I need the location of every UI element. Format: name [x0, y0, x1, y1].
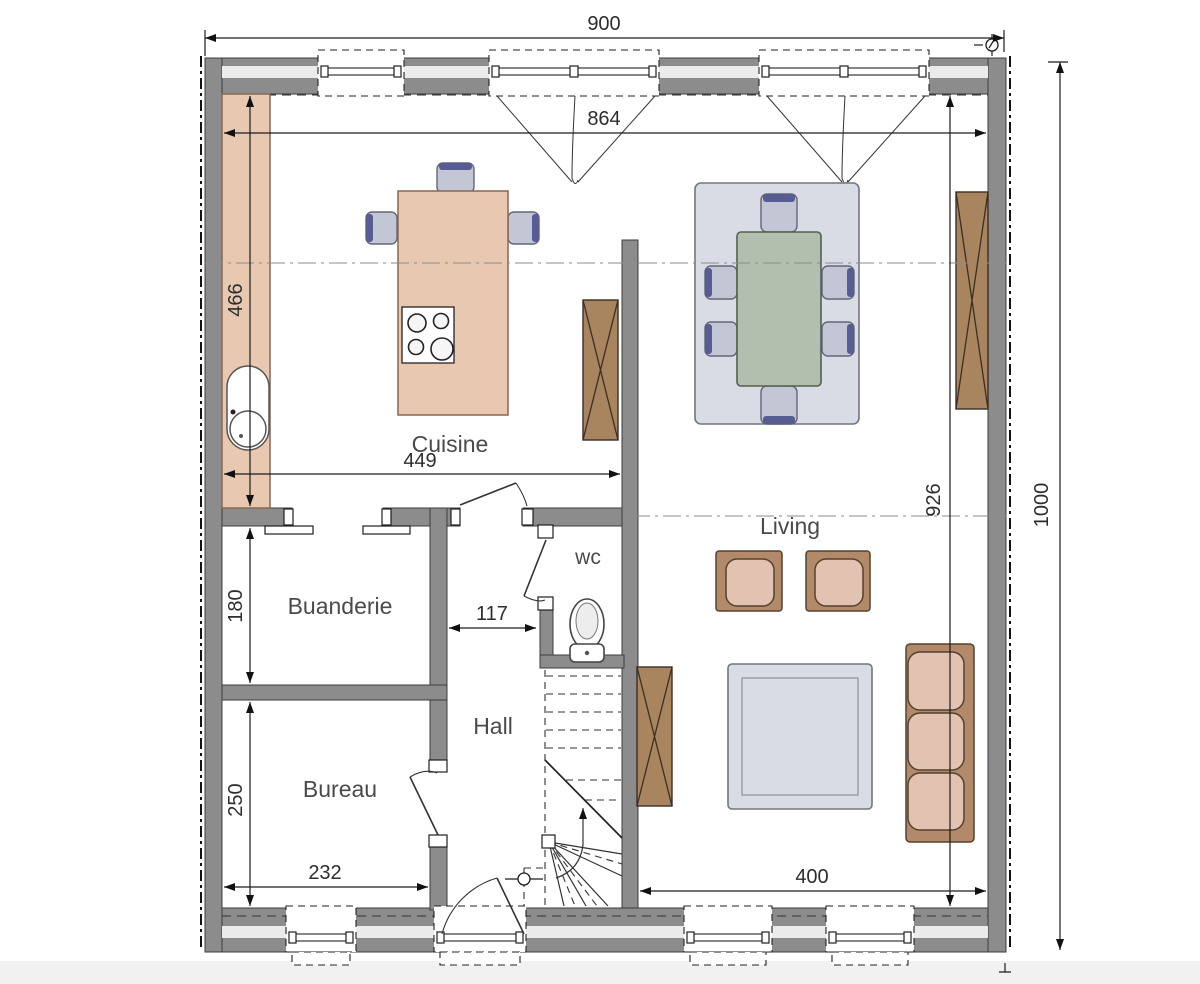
window-bureau: [286, 906, 356, 965]
floor-plan-canvas: 900 864 466 449 926 1000 180 250: [0, 0, 1200, 984]
island-chair-left: [366, 212, 397, 244]
dim-label-kitchen-depth: 466: [225, 283, 247, 316]
kitchen-tall-cabinet: [583, 300, 618, 440]
dim-label-bureau-depth: 250: [225, 783, 247, 816]
wc-door-jamb-top: [538, 525, 553, 538]
background: [0, 0, 1200, 984]
island-chair-top: [437, 163, 474, 193]
kitchen-door-jamb-right: [522, 509, 533, 525]
dining-sideboard: [956, 192, 988, 409]
burner: [434, 314, 449, 329]
cuisine-buanderie-wall-left: [222, 508, 292, 526]
room-label-buanderie: Buanderie: [288, 593, 393, 619]
window-living-left: [684, 906, 772, 965]
burner: [409, 340, 424, 355]
kitchen-sink-basin: [230, 411, 266, 447]
sink-faucet-dot: [231, 410, 236, 415]
sink-drain-dot: [239, 434, 243, 438]
dining-table: [737, 232, 821, 386]
stair-newel-post: [542, 835, 555, 848]
dim-label-bureau-width: 232: [308, 862, 341, 884]
bureau-door-jamb-bottom: [429, 835, 447, 847]
dining-chair: [761, 194, 797, 232]
toilet-button: [585, 651, 589, 655]
dining-chair: [705, 322, 737, 356]
kitchen-door-jamb-left: [451, 509, 460, 525]
room-label-living: Living: [760, 513, 820, 539]
living-cabinet: [637, 667, 672, 806]
window-living-right: [826, 906, 914, 965]
buanderie-bureau-wall: [222, 685, 447, 700]
buanderie-door-jamb-right: [382, 509, 391, 525]
dim-label-interior-depth: 926: [923, 483, 945, 516]
background-bottom-band: [0, 961, 1200, 984]
buanderie-door-jamb-left: [284, 509, 293, 525]
right-wall: [988, 58, 1006, 952]
burner: [431, 338, 453, 360]
window-top-small: [318, 50, 404, 96]
burner: [408, 314, 426, 332]
dim-label-hall-passage: 117: [476, 603, 508, 625]
room-label-cuisine: Cuisine: [412, 431, 489, 457]
floor-plan-drawing: 900 864 466 449 926 1000 180 250: [0, 0, 1200, 984]
dining-chair: [822, 266, 854, 299]
armchair-left: [716, 551, 782, 611]
dim-label-interior-width: 864: [587, 108, 620, 130]
entry-door-opening: [434, 906, 526, 965]
dining-chair: [822, 322, 854, 356]
bureau-door-jamb-top: [429, 760, 447, 772]
cuisine-buanderie-wall-right: [383, 508, 460, 526]
entry-datum-circle: [518, 873, 530, 885]
kitchen-island: [398, 191, 508, 415]
armchair-right: [806, 551, 870, 611]
buanderie-sliding-panel-right: [363, 526, 410, 534]
central-wall: [622, 240, 638, 908]
toilet-bowl-inner: [576, 603, 598, 639]
dining-chair: [705, 266, 737, 299]
dim-label-overall-width: 900: [587, 13, 620, 35]
living-rug: [728, 664, 872, 809]
sofa: [906, 644, 974, 842]
dining-chair: [761, 386, 797, 424]
room-label-bureau: Bureau: [303, 776, 377, 802]
left-wall: [205, 58, 222, 952]
datum-symbol-circle: [986, 39, 998, 51]
room-label-hall: Hall: [473, 713, 513, 739]
dim-label-overall-depth: 1000: [1031, 483, 1053, 528]
buanderie-sliding-panel-left: [265, 526, 313, 534]
wc-fixtures: [570, 599, 604, 662]
dim-label-buanderie-depth: 180: [225, 589, 247, 622]
room-label-wc: wc: [574, 546, 601, 569]
wc-top-wall: [523, 508, 623, 526]
hall-wall-upper: [430, 508, 447, 772]
island-chair-right: [508, 212, 539, 244]
dim-label-living-width: 400: [795, 866, 828, 888]
wc-door-jamb-bottom: [538, 597, 553, 610]
